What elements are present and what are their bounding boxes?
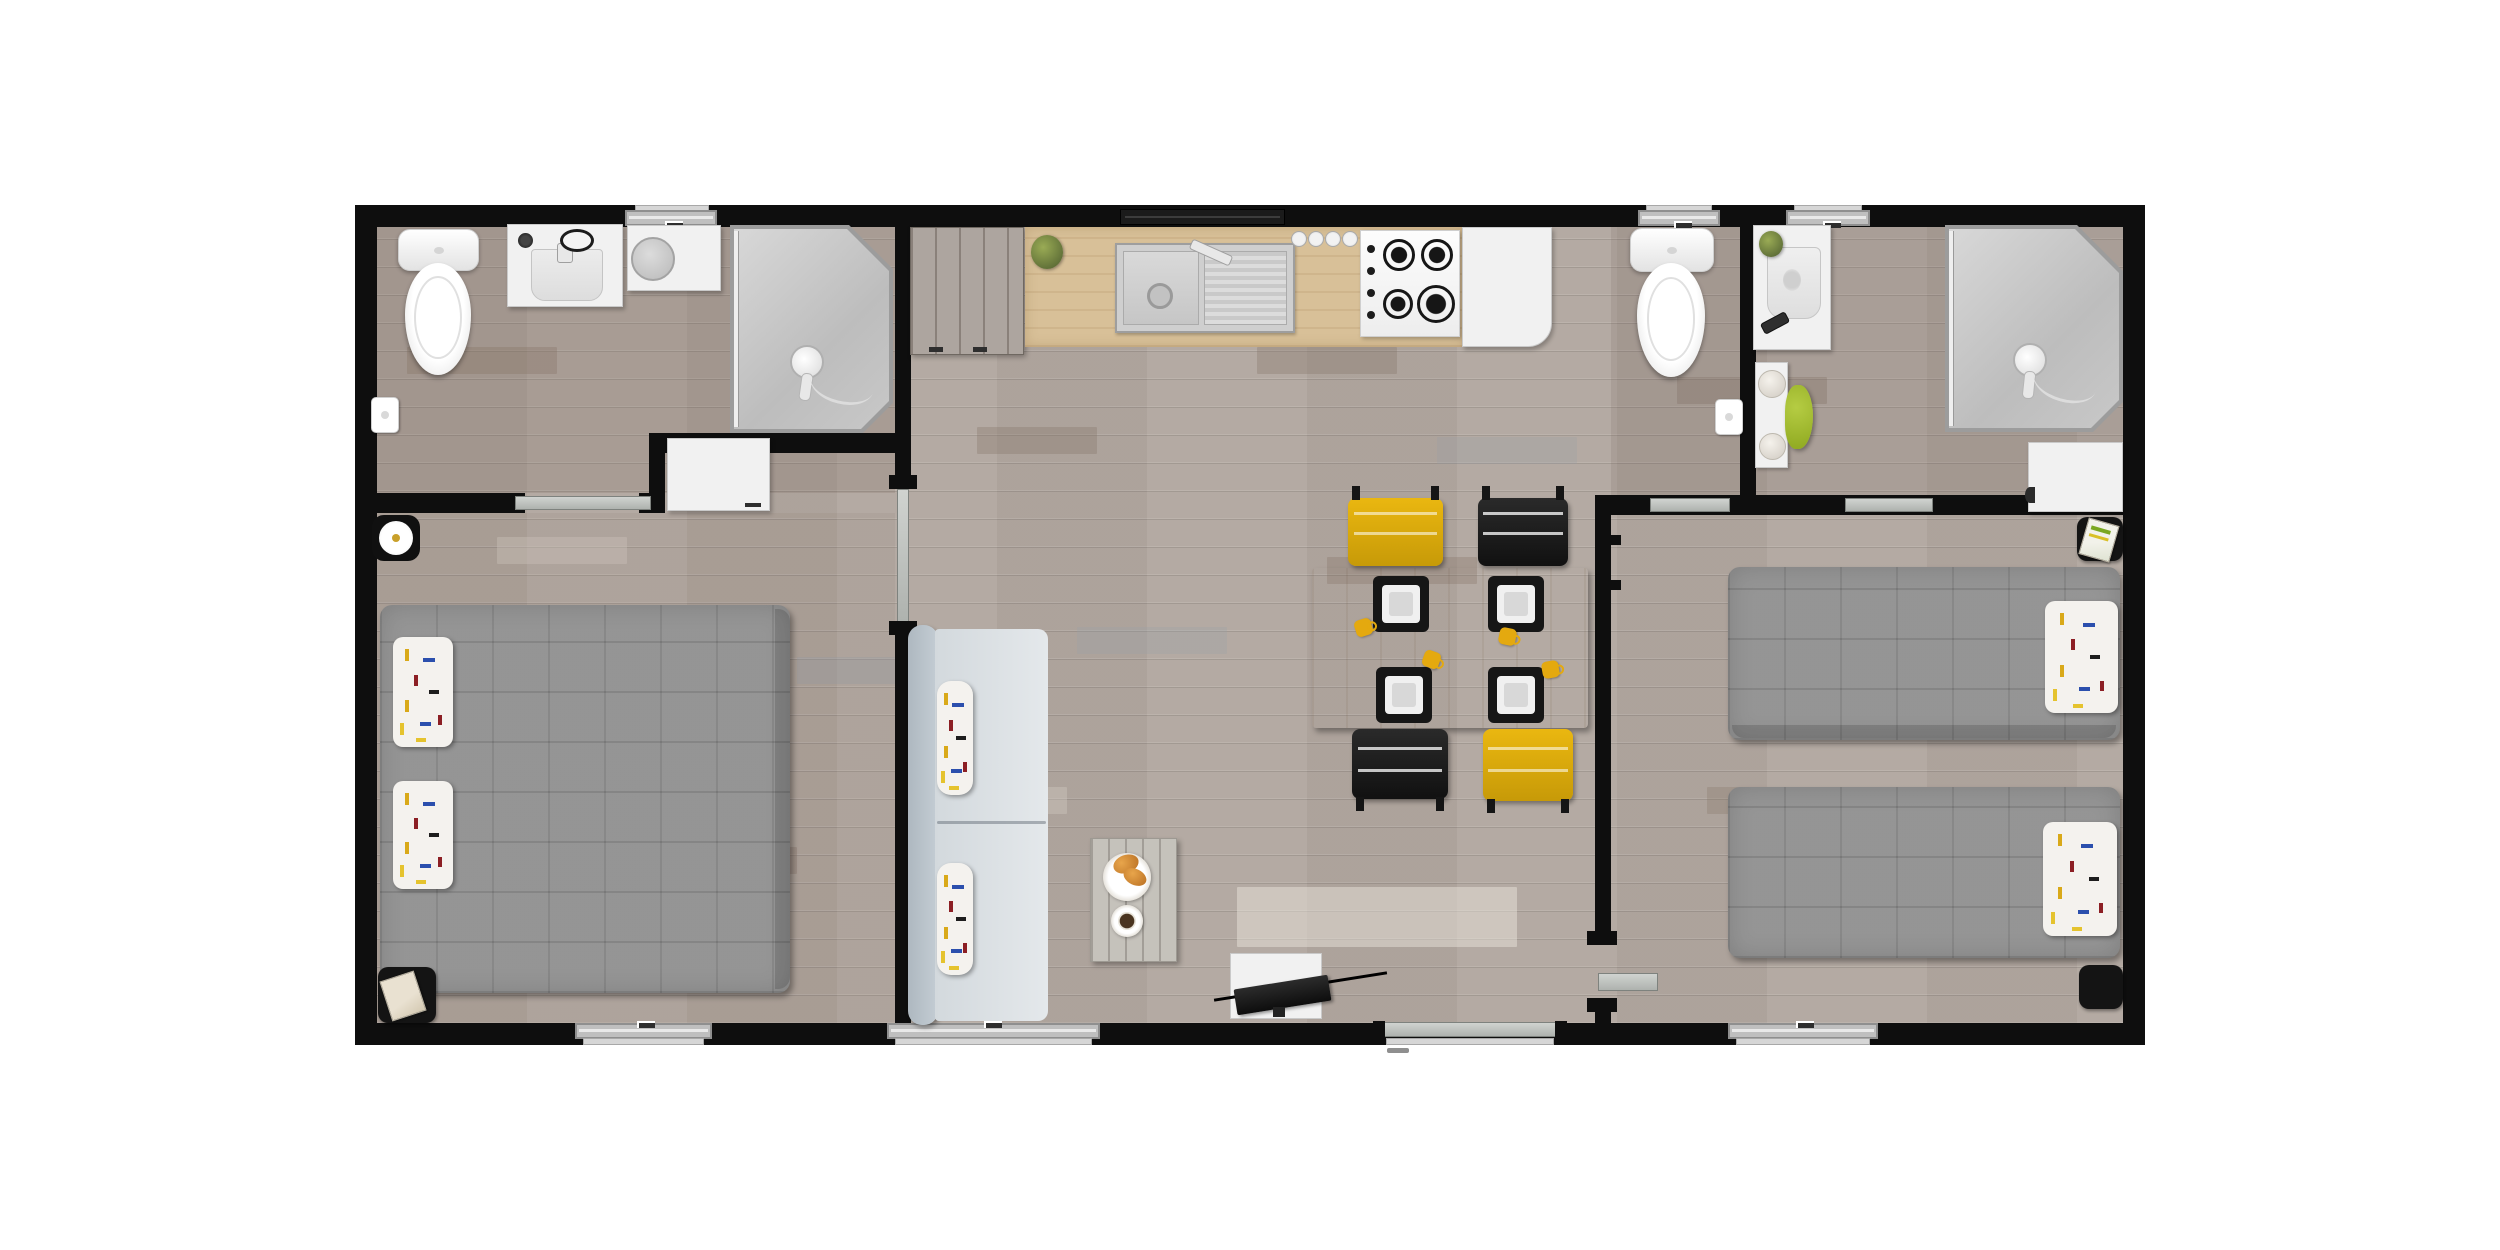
placemat [1376,667,1432,723]
counter-knob [1342,231,1358,247]
burner [1383,289,1413,319]
entry-door-sill [1386,1038,1554,1045]
burner [1421,239,1453,271]
sofa-backrest [908,625,938,1025]
door-jamb [1587,998,1617,1012]
window-sill-outer [583,1038,704,1045]
chair-slat [1358,769,1443,772]
sink-drain [1147,283,1173,309]
chair-post [1561,799,1569,813]
confetti-pillow [2045,601,2118,713]
shelf-bowl [1758,370,1786,398]
living-window [887,1023,1100,1039]
counter-knob [1308,231,1324,247]
yellow-mug [1497,626,1517,646]
dining-table [1312,568,1588,728]
round-basin [631,237,675,281]
confetti-cushion [937,863,973,975]
hinge-mark [485,493,495,501]
chair-slat [1483,512,1562,515]
floor-light-patch [1237,887,1517,947]
plant [1031,235,1063,269]
bedroom-left-sliding-door [897,489,909,623]
bathroom-right-sliding-door [1845,498,1933,512]
dinner-plate [1382,585,1420,623]
chair-post [1482,486,1490,500]
plant [1759,231,1783,257]
sofa-seat-split [937,821,1046,824]
window-pane [1790,216,1866,219]
chair-post [1356,797,1364,811]
window-handle [984,1021,1002,1028]
placemat [1488,576,1544,632]
window-pane [891,1029,1096,1032]
dinner-plate [1497,676,1535,714]
kitchen-window [1120,209,1285,225]
floor-plank-patch [1257,347,1397,374]
wall-clock [372,515,420,561]
window-pane [579,1029,708,1032]
bed-edge [1732,725,2116,738]
wardrobe-handle [745,503,761,507]
soap-dish [560,229,594,252]
entry-door-handle [1387,1048,1409,1053]
corner-shower [1945,225,2123,432]
shower-glass-door [734,231,738,427]
bed-foot-edge [775,609,790,989]
floor-plank-patch [1077,627,1227,654]
confetti-cushion [937,681,973,795]
corner-shower [730,225,893,433]
yellow-mug [1541,660,1561,680]
hob-knob [1367,267,1375,275]
window-pane [1642,216,1716,219]
chair-post [1352,486,1360,500]
bedroom-right-door-threshold [1598,973,1658,991]
chair-post [1436,797,1444,811]
wall-living-bed2-a [1595,495,1611,945]
hinge-mark [455,493,465,501]
floor-plan [355,205,2145,1045]
chair-post [1431,486,1439,500]
soap-dispenser [518,233,533,248]
confetti-pillow [2043,822,2117,936]
wc-right-window [1638,210,1720,226]
chair-slat [1488,747,1567,750]
hob-knob [1367,245,1375,253]
kitchen-sink [1115,243,1295,333]
window-sill-outer [1736,1038,1870,1045]
burner [1417,285,1455,323]
bedroom-left-window [575,1023,712,1039]
basin-drain [1783,269,1801,291]
bathroom-right-window [1786,210,1870,226]
chair-slat [1483,532,1562,535]
floor-plank-patch [497,537,627,564]
chair-slat [1358,747,1443,750]
chair-post [1487,799,1495,813]
toilet-paper-holder [1715,399,1743,435]
window-sill-outer [895,1038,1092,1045]
tall-cabinet [910,227,1024,355]
tv-stand [1273,1007,1285,1017]
wardrobe [667,438,770,511]
hob-knob [1367,289,1375,297]
entry-door [1380,1022,1560,1037]
floor-plank-patch [977,427,1097,454]
cabinet-handle [973,347,987,352]
hinge-mark [1611,535,1621,545]
shower-glass-door [1949,231,1953,426]
door-jamb [1555,1021,1567,1041]
gas-hob [1360,230,1460,337]
fridge [1462,227,1552,347]
counter-knob [1325,231,1341,247]
storage-cabinet [2028,442,2123,512]
placemat [1488,667,1544,723]
dinner-plate [1497,585,1535,623]
chair-slat [1354,512,1438,515]
burner [1383,239,1415,271]
wall-bed1-top-a [377,493,525,513]
wc-right-sliding-door [1650,498,1730,512]
door-jamb [889,475,917,489]
hinge-mark [1611,580,1621,590]
door-jamb [1373,1021,1385,1041]
window-pane [629,216,713,219]
window-handle [637,1021,655,1028]
dining-chair-black [1478,498,1568,566]
bathroom-left-window [625,210,717,226]
dining-chair-yellow [1348,498,1443,566]
window-pane [1732,1029,1874,1032]
dinner-plate [1385,676,1423,714]
window-handle [1796,1021,1814,1028]
hob-knob [1367,311,1375,319]
window-handle [1674,221,1692,228]
chair-post [1556,486,1564,500]
cabinet-handle [929,347,943,352]
toilet-paper-holder [371,397,399,433]
confetti-pillow [393,637,453,747]
counter-knob [1291,231,1307,247]
shelf-bowl [1759,433,1786,460]
cabinet-knob [2025,487,2035,503]
bedside-mat [2079,965,2123,1009]
dining-chair-yellow [1483,729,1573,801]
bathroom-left-sliding-door [515,496,651,510]
dining-chair-black [1352,729,1448,799]
chair-slat [1488,769,1567,772]
chair-slat [1354,532,1438,535]
magazine-stripe [2089,533,2109,541]
screenshot-canvas [0,0,2500,1250]
door-jamb [1587,931,1617,945]
floor-plank-patch [1437,437,1577,464]
sink-drainboard [1204,251,1287,325]
window-pane [1125,216,1280,218]
bedroom-right-window [1728,1023,1878,1039]
coffee-cup [1118,912,1136,930]
placemat [1373,576,1429,632]
shower-tray [1949,229,2119,428]
confetti-pillow [393,781,453,889]
